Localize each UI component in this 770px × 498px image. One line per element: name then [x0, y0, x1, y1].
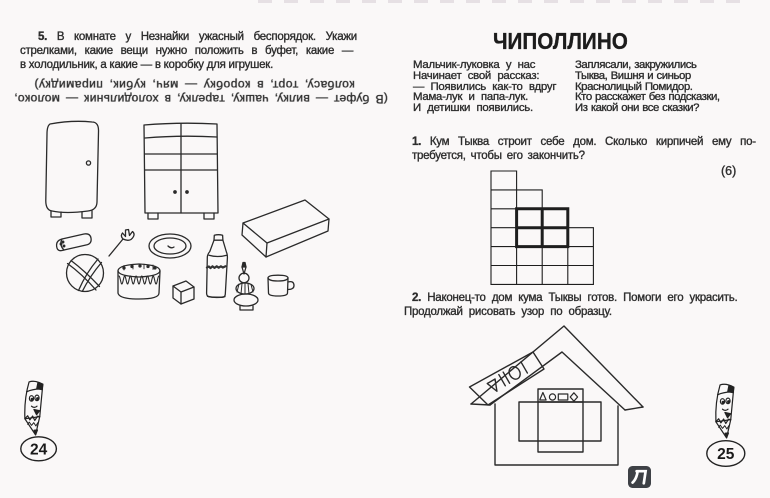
svg-text:25: 25: [717, 446, 735, 463]
svg-text:24: 24: [30, 441, 48, 458]
